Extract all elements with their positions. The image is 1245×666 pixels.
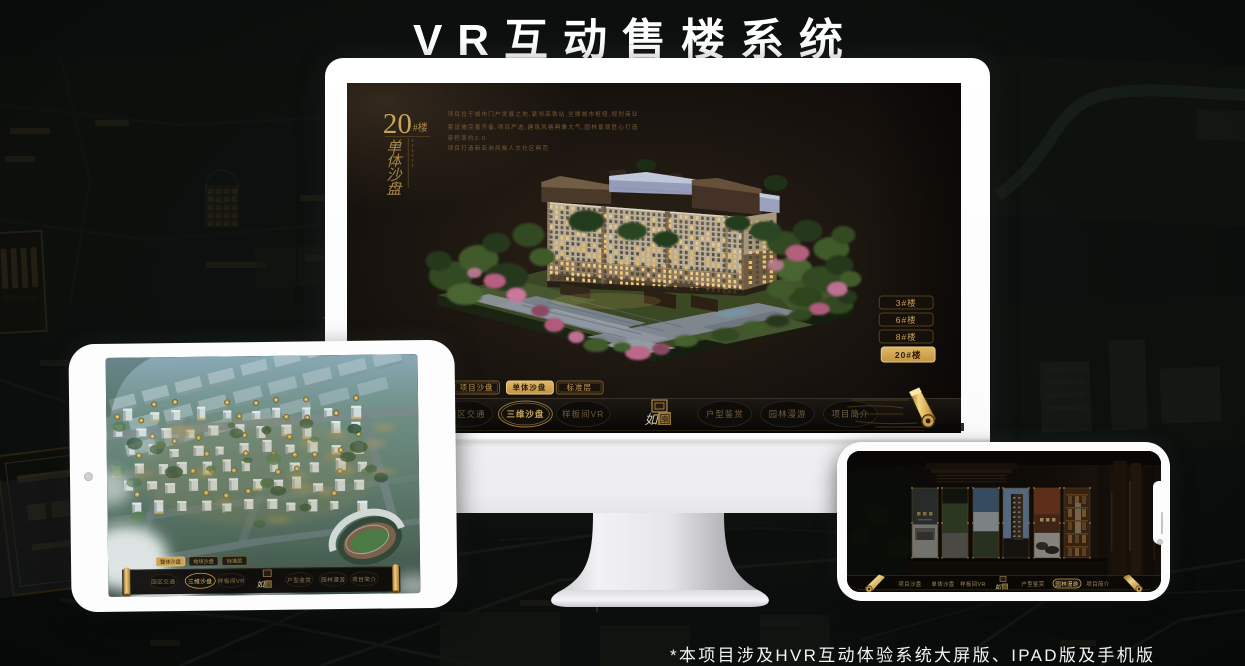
svg-text:园林漫游: 园林漫游 (1055, 580, 1078, 588)
svg-text:园林漫游: 园林漫游 (769, 409, 807, 419)
svg-text:单体沙盘: 单体沙盘 (931, 580, 954, 588)
svg-text:户型鉴赏: 户型鉴赏 (706, 409, 744, 419)
svg-text:容积率约2.0.: 容积率约2.0. (448, 134, 489, 142)
svg-text:标准层: 标准层 (227, 557, 243, 565)
svg-text:项目沙盘: 项目沙盘 (460, 382, 494, 392)
svg-text:项目打造新亚洲风格人文社区典范: 项目打造新亚洲风格人文社区典范 (448, 144, 549, 152)
svg-text:20: 20 (383, 108, 412, 140)
svg-text:样板间VR: 样板间VR (562, 409, 604, 419)
svg-text:6#楼: 6#楼 (896, 315, 917, 325)
svg-text:套设施完善齐备,项目严选,建筑风格典雅大气,园林景观匠心打造: 套设施完善齐备,项目严选,建筑风格典雅大气,园林景观匠心打造 (448, 123, 639, 131)
svg-text:3#楼: 3#楼 (896, 298, 917, 308)
svg-text:单体沙盘: 单体沙盘 (512, 382, 546, 392)
svg-text:项目位于城市门户发展之地,紧邻高铁站,坐拥城市枢纽,规划商业: 项目位于城市门户发展之地,紧邻高铁站,坐拥城市枢纽,规划商业 (448, 110, 639, 118)
svg-text:如: 如 (995, 583, 1002, 591)
svg-text:样板间VR: 样板间VR (960, 580, 986, 588)
svg-text:20#楼: 20#楼 (895, 350, 922, 360)
svg-text:三维沙盘: 三维沙盘 (507, 409, 545, 419)
svg-text:園: 園 (1002, 584, 1007, 591)
svg-text:整体沙盘: 整体沙盘 (160, 558, 181, 566)
svg-text:标准层: 标准层 (567, 382, 592, 392)
svg-text:#楼: #楼 (413, 121, 428, 134)
svg-text:8#楼: 8#楼 (896, 332, 917, 342)
svg-text:项目沙盘: 项目沙盘 (898, 580, 921, 588)
svg-text:项目简介: 项目简介 (1086, 580, 1109, 588)
svg-text:園: 園 (265, 581, 272, 589)
svg-text:户型鉴赏: 户型鉴赏 (1021, 580, 1044, 588)
svg-text:如: 如 (645, 412, 660, 427)
svg-text:盘: 盘 (386, 181, 403, 198)
svg-text:地块沙盘: 地块沙盘 (193, 557, 214, 565)
svg-text:園: 園 (659, 413, 670, 426)
